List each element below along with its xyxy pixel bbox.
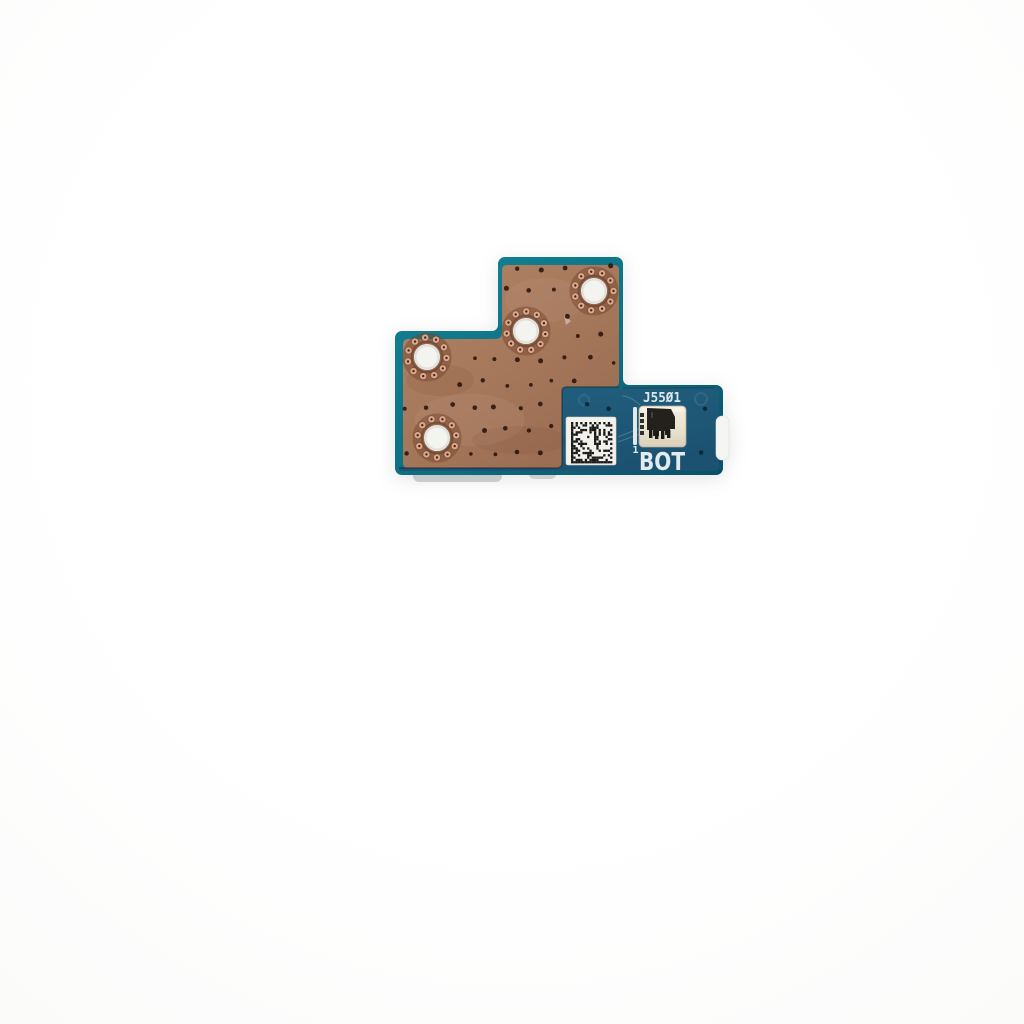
via-dot [450,402,455,407]
via-dot [505,384,509,388]
plated-hole [424,425,451,452]
via-dot [608,263,613,268]
pcb-board: J55Ø1 1 BOT [395,257,729,476]
via-dot [403,407,407,411]
connector-designator-text: J55Ø1 [643,391,681,406]
via-dot [404,451,408,455]
via-dot [503,426,508,431]
connector-bottom-lip [642,440,683,444]
via-dot [563,266,568,271]
via-dot [515,267,519,271]
via-dot [576,334,580,338]
mounting-hole [503,308,549,353]
pcb-photo-canvas: J55Ø1 1 BOT [0,0,1024,1024]
via-dot [473,356,477,360]
via-dot [491,405,496,410]
via-dot [515,357,520,362]
via-dot [612,361,616,365]
via-dot [457,382,462,387]
pin1-marker-text: 1 [632,445,638,456]
via-dot [504,286,509,291]
via-dot [526,288,531,293]
via-dot [606,407,611,412]
product-photo: J55Ø1 1 BOT [0,0,1024,1024]
via-dot [585,402,590,407]
via-dot [519,406,523,410]
via-dot [482,428,487,433]
plated-hole [513,318,540,345]
via-dot [515,450,520,455]
ffc-connector [633,406,686,447]
via-dot [493,452,497,456]
board-side-text: BOT [639,447,685,476]
pin1-silkscreen-bar [633,407,637,445]
via-dot [699,450,704,455]
via-dot [539,267,544,272]
via-dot [565,314,570,319]
mounting-hole [572,268,617,314]
via-dot [492,357,496,361]
via-dot [469,452,473,456]
via-dot [538,358,543,363]
via-dot [549,379,553,383]
plated-hole [414,344,441,371]
plated-hole [581,278,608,305]
via-dot [424,405,429,410]
via-dot [549,424,553,428]
via-dot [538,402,543,407]
via-dot [481,378,485,382]
latch-highlight [651,412,653,418]
via-dot [598,332,603,337]
mounting-hole [405,334,451,380]
via-dot [472,405,477,410]
mounting-hole [414,416,460,461]
via-dot [538,450,543,455]
datamatrix-label [566,417,616,465]
via-dot [562,355,566,359]
via-dot [527,428,531,432]
via-dot [552,288,556,292]
via-dot [529,383,533,387]
via-dot [588,355,593,360]
via-dot [703,407,707,411]
via-dot [572,379,577,384]
edge-notch [716,416,729,460]
